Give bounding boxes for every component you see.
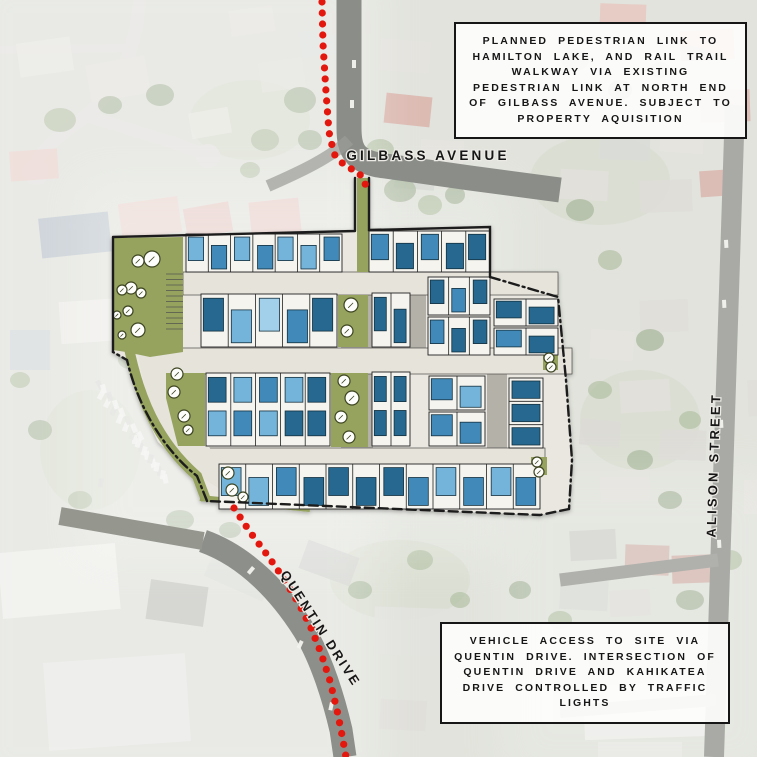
building-unit (460, 422, 481, 443)
route-dot (322, 75, 329, 82)
route-dot (319, 31, 326, 38)
building-unit (208, 411, 226, 436)
building-unit (188, 237, 203, 261)
building-unit (329, 468, 349, 496)
masterplan-aerial-map: GILBASS AVENUE ALISON STREET QUENTIN DRI… (0, 0, 757, 757)
building-unit (249, 478, 269, 506)
route-dot (340, 741, 347, 748)
pedestrian-link-path (357, 178, 369, 272)
building-unit (304, 478, 324, 506)
building-unit (308, 411, 326, 436)
building-unit (203, 298, 223, 331)
route-dot (268, 558, 275, 565)
building-unit (469, 234, 486, 259)
building-unit (211, 245, 226, 269)
building-unit (394, 410, 406, 435)
building-unit (460, 386, 481, 407)
building-unit (529, 307, 554, 324)
route-dot (334, 708, 341, 715)
building-unit (276, 468, 296, 496)
route-dot (326, 130, 333, 137)
route-dot (323, 666, 330, 673)
site-internal-road (200, 448, 545, 466)
route-dot (237, 514, 244, 521)
route-dot (316, 645, 323, 652)
building-unit (436, 468, 456, 496)
building-unit (512, 404, 540, 421)
building-unit (512, 428, 540, 445)
building-unit (234, 411, 252, 436)
south-annotation-box: VEHICLE ACCESS TO SITE VIA QUENTIN DRIVE… (440, 622, 730, 724)
route-dot (255, 541, 262, 548)
building-unit (234, 237, 249, 261)
route-dot (331, 151, 338, 158)
building-unit (374, 297, 386, 330)
building-unit (278, 237, 293, 261)
building-unit (491, 468, 511, 496)
building-unit (473, 320, 487, 344)
south-annotation-text: VEHICLE ACCESS TO SITE VIA QUENTIN DRIVE… (454, 635, 716, 709)
building-unit (324, 237, 339, 261)
building-unit (409, 478, 429, 506)
building-unit (313, 298, 333, 331)
building-unit (260, 377, 278, 402)
building-unit (301, 245, 316, 269)
building-unit (430, 280, 444, 304)
street-label-gilbass-avenue: GILBASS AVENUE (346, 148, 509, 163)
route-dot (325, 119, 332, 126)
building-unit (384, 468, 404, 496)
route-dot (348, 165, 355, 172)
north-annotation-box: PLANNED PEDESTRIAN LINK TO HAMILTON LAKE… (454, 22, 747, 139)
building-unit (431, 379, 452, 400)
building-unit (512, 381, 540, 398)
building-unit (446, 243, 463, 268)
building-unit (371, 234, 388, 259)
building-unit (529, 336, 554, 353)
route-dot (320, 42, 327, 49)
route-dot (328, 141, 335, 148)
building-unit (431, 415, 452, 436)
building-unit (231, 310, 251, 343)
route-dot (323, 97, 330, 104)
route-dot (320, 53, 327, 60)
route-dot (326, 676, 333, 683)
building-unit (394, 376, 406, 401)
route-dot (329, 687, 336, 694)
building-unit (374, 376, 386, 401)
route-dot (319, 655, 326, 662)
route-dot (321, 64, 328, 71)
building-unit (430, 320, 444, 344)
building-unit (356, 478, 376, 506)
building-unit (208, 377, 226, 402)
building-unit (396, 243, 413, 268)
route-dot (319, 9, 326, 16)
building-unit (234, 377, 252, 402)
building-unit (496, 330, 521, 347)
building-unit (452, 288, 466, 312)
route-dot (338, 730, 345, 737)
building-unit (285, 377, 303, 402)
north-annotation-text: PLANNED PEDESTRIAN LINK TO HAMILTON LAKE… (469, 35, 732, 125)
building-unit (464, 478, 484, 506)
building-unit (452, 328, 466, 352)
building-unit (421, 234, 438, 259)
building-unit (258, 245, 273, 269)
route-dot (230, 504, 237, 511)
building-unit (374, 410, 386, 435)
site-internal-road (183, 272, 558, 295)
route-dot (262, 549, 269, 556)
building-unit (285, 411, 303, 436)
building-unit (394, 309, 406, 342)
route-dot (243, 523, 250, 530)
route-dot (331, 698, 338, 705)
route-dot (362, 181, 369, 188)
route-dot (324, 108, 331, 115)
route-dot (322, 86, 329, 93)
building-unit (308, 377, 326, 402)
building-unit (260, 411, 278, 436)
building-unit (287, 310, 307, 343)
route-dot (339, 159, 346, 166)
route-dot (357, 171, 364, 178)
building-unit (259, 298, 279, 331)
route-dot (319, 20, 326, 27)
route-dot (336, 719, 343, 726)
building-unit (496, 301, 521, 318)
building-unit (473, 280, 487, 304)
route-dot (249, 532, 256, 539)
building-unit (516, 478, 536, 506)
